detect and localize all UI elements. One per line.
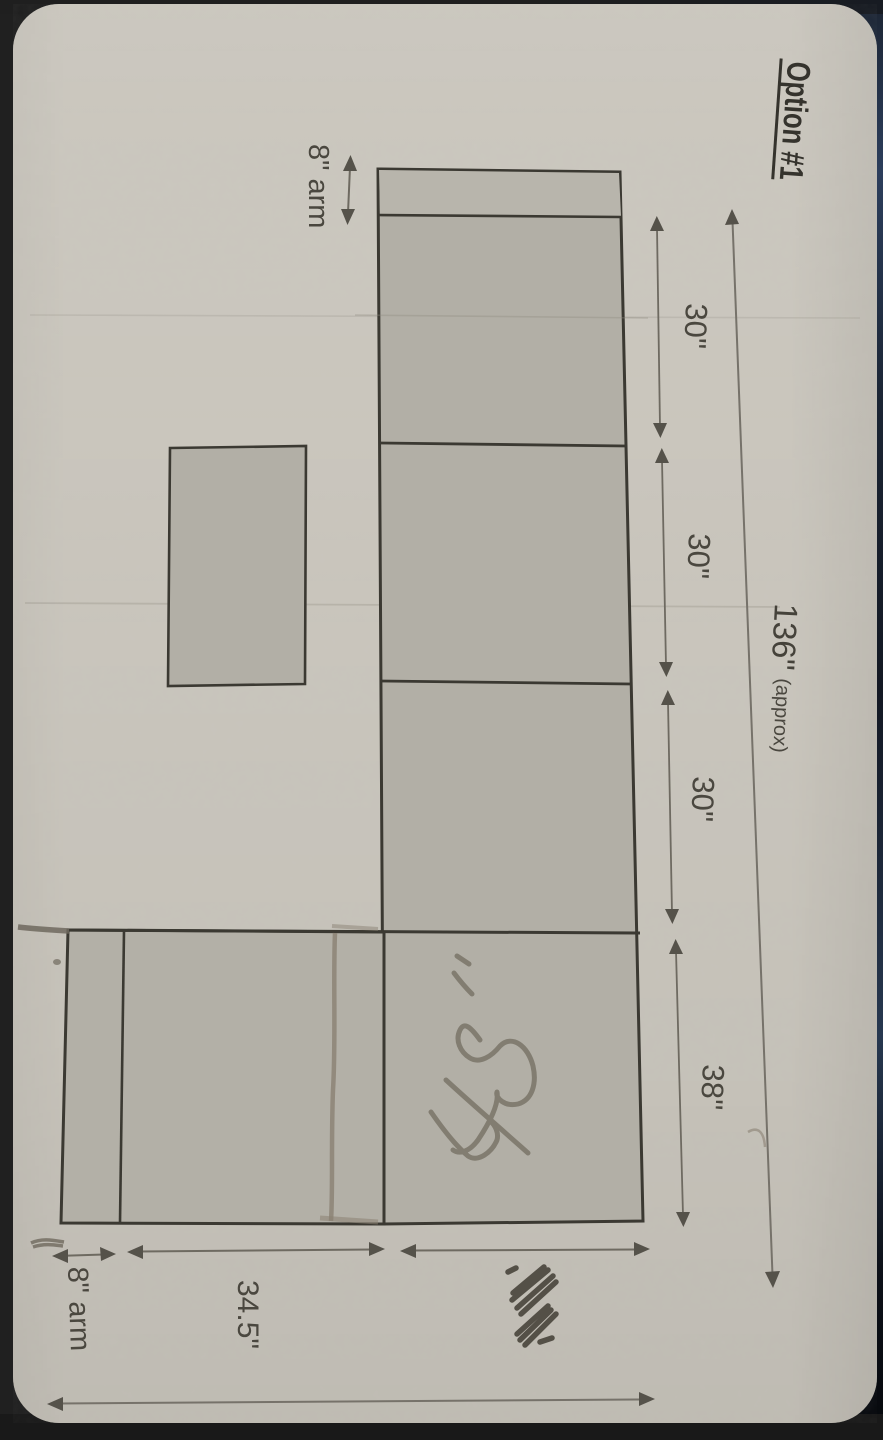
- svg-text:38": 38": [694, 1064, 731, 1111]
- svg-text:34.5": 34.5": [231, 1280, 264, 1349]
- svg-text:8" arm: 8" arm: [61, 1266, 96, 1352]
- svg-text:30": 30": [677, 303, 714, 350]
- svg-text:(approx): (approx): [768, 678, 794, 754]
- svg-text:30": 30": [684, 776, 721, 823]
- svg-text:30": 30": [680, 533, 717, 580]
- svg-text:136": 136": [765, 603, 805, 672]
- svg-text:8" arm: 8" arm: [302, 144, 334, 228]
